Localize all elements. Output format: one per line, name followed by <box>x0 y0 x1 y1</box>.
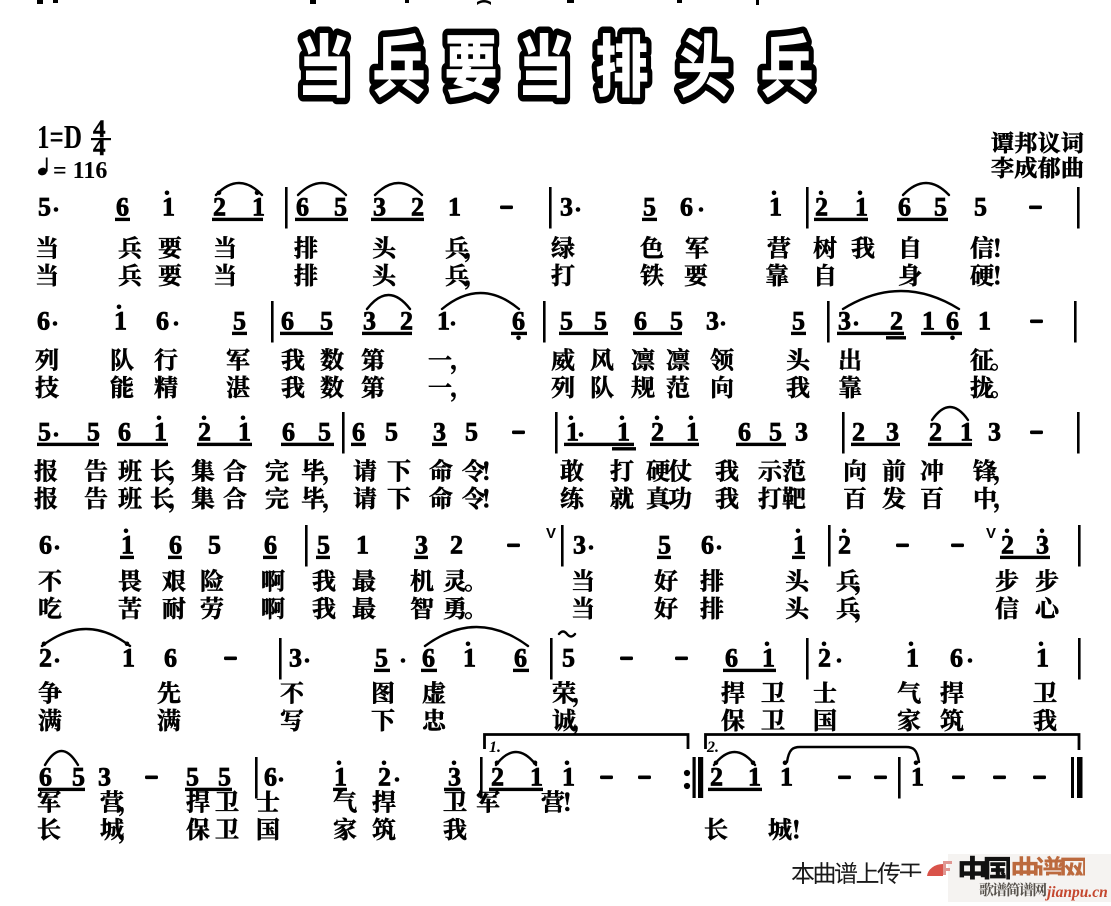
svg-text:1: 1 <box>162 193 175 222</box>
svg-text:2.: 2. <box>706 739 719 756</box>
svg-text:1: 1 <box>463 644 476 673</box>
svg-text:3: 3 <box>448 763 461 792</box>
svg-text:3: 3 <box>373 193 386 222</box>
svg-text:1: 1 <box>356 531 369 560</box>
svg-text:1: 1 <box>154 418 167 447</box>
svg-text:6: 6 <box>634 307 647 336</box>
svg-text:3: 3 <box>363 307 376 336</box>
svg-text:6: 6 <box>39 531 52 560</box>
svg-text:3: 3 <box>838 307 851 336</box>
svg-text:6: 6 <box>514 644 527 673</box>
svg-text:5: 5 <box>334 193 347 222</box>
svg-text:2: 2 <box>198 418 211 447</box>
svg-text:6: 6 <box>512 307 525 336</box>
svg-text:1: 1 <box>855 193 868 222</box>
svg-text:2: 2 <box>838 531 851 560</box>
svg-text:2: 2 <box>400 307 413 336</box>
svg-text:5: 5 <box>317 531 330 560</box>
svg-text:5: 5 <box>186 763 199 792</box>
svg-text:5: 5 <box>658 531 671 560</box>
svg-text:6: 6 <box>264 763 277 792</box>
svg-text:4: 4 <box>93 134 106 161</box>
svg-text:5: 5 <box>974 193 987 222</box>
svg-text:6: 6 <box>264 531 277 560</box>
svg-text:2: 2 <box>651 418 664 447</box>
svg-text:3: 3 <box>98 763 111 792</box>
svg-text:6: 6 <box>701 531 714 560</box>
svg-text:6: 6 <box>37 307 50 336</box>
svg-text:3: 3 <box>560 193 573 222</box>
svg-text:2: 2 <box>815 193 828 222</box>
svg-text:6: 6 <box>946 307 959 336</box>
svg-text:6: 6 <box>169 531 182 560</box>
svg-text:5: 5 <box>38 193 51 222</box>
svg-text:5: 5 <box>385 418 398 447</box>
svg-text:1: 1 <box>562 763 575 792</box>
svg-text:1: 1 <box>748 763 761 792</box>
svg-text:2: 2 <box>929 418 942 447</box>
svg-text:1: 1 <box>922 307 935 336</box>
svg-text:5: 5 <box>792 307 805 336</box>
svg-text:3: 3 <box>886 418 899 447</box>
svg-text:3: 3 <box>573 531 586 560</box>
svg-text:1: 1 <box>780 763 793 792</box>
svg-text:2: 2 <box>890 307 903 336</box>
svg-text:1: 1 <box>978 307 991 336</box>
svg-text:2: 2 <box>491 763 504 792</box>
svg-text:5: 5 <box>465 418 478 447</box>
svg-text:6: 6 <box>281 307 294 336</box>
svg-text:2: 2 <box>39 644 52 673</box>
svg-text:2: 2 <box>450 531 463 560</box>
svg-text:5: 5 <box>233 307 246 336</box>
svg-text:1: 1 <box>437 307 450 336</box>
svg-text:6: 6 <box>156 307 169 336</box>
svg-text:jianpu.cn: jianpu.cn <box>1044 884 1108 901</box>
svg-text:6: 6 <box>950 644 963 673</box>
svg-text:1: 1 <box>122 644 135 673</box>
svg-text:1: 1 <box>530 763 543 792</box>
svg-text:3: 3 <box>795 418 808 447</box>
svg-text:1: 1 <box>334 763 347 792</box>
svg-text:5: 5 <box>562 644 575 673</box>
svg-text:1: 1 <box>448 193 461 222</box>
svg-text:5: 5 <box>320 307 333 336</box>
svg-text:3: 3 <box>289 644 302 673</box>
svg-text:5: 5 <box>670 307 683 336</box>
svg-text:3: 3 <box>988 418 1001 447</box>
svg-text:5: 5 <box>72 763 85 792</box>
svg-text:1: 1 <box>960 418 973 447</box>
svg-text:6: 6 <box>680 193 693 222</box>
svg-text:6: 6 <box>422 644 435 673</box>
svg-text:6: 6 <box>725 644 738 673</box>
svg-text:6: 6 <box>738 418 751 447</box>
svg-text:2: 2 <box>818 644 831 673</box>
svg-text:1: 1 <box>906 644 919 673</box>
svg-text:1=D: 1=D <box>37 119 82 156</box>
svg-text:5: 5 <box>934 193 947 222</box>
svg-text:1: 1 <box>793 531 806 560</box>
svg-text:3: 3 <box>415 531 428 560</box>
svg-text:2: 2 <box>213 193 226 222</box>
svg-text:1: 1 <box>252 193 265 222</box>
svg-text:1: 1 <box>114 307 127 336</box>
svg-text:5: 5 <box>375 644 388 673</box>
svg-text:1: 1 <box>769 193 782 222</box>
svg-text:1: 1 <box>911 763 924 792</box>
svg-text:1: 1 <box>617 418 630 447</box>
svg-text:6: 6 <box>164 644 177 673</box>
svg-text:6: 6 <box>118 418 131 447</box>
svg-text:1: 1 <box>566 418 579 447</box>
svg-text:6: 6 <box>296 193 309 222</box>
svg-text:= 116: = 116 <box>53 158 107 184</box>
svg-text:2: 2 <box>852 418 865 447</box>
svg-text:3: 3 <box>706 307 719 336</box>
svg-text:V: V <box>986 525 996 542</box>
svg-text:2: 2 <box>411 193 424 222</box>
svg-text:5: 5 <box>87 418 100 447</box>
svg-text:6: 6 <box>116 193 129 222</box>
svg-text:6: 6 <box>898 193 911 222</box>
svg-text:1: 1 <box>121 531 134 560</box>
svg-text:1.: 1. <box>489 739 501 756</box>
svg-text:6: 6 <box>39 763 52 792</box>
svg-text:6: 6 <box>352 418 365 447</box>
svg-text:1: 1 <box>686 418 699 447</box>
svg-text:3: 3 <box>433 418 446 447</box>
svg-text:5: 5 <box>643 193 656 222</box>
svg-text:5: 5 <box>218 763 231 792</box>
svg-text:V: V <box>546 525 556 542</box>
svg-text:3: 3 <box>1036 531 1049 560</box>
svg-text:5: 5 <box>560 307 573 336</box>
svg-text:5: 5 <box>594 307 607 336</box>
svg-text:1: 1 <box>1036 644 1049 673</box>
svg-text:2: 2 <box>1001 531 1014 560</box>
svg-text:1: 1 <box>762 644 775 673</box>
svg-text:5: 5 <box>38 418 51 447</box>
svg-text:1: 1 <box>238 418 251 447</box>
svg-text:5: 5 <box>769 418 782 447</box>
svg-text:2: 2 <box>710 763 723 792</box>
svg-text:5: 5 <box>208 531 221 560</box>
svg-text:2: 2 <box>378 763 391 792</box>
svg-text:5: 5 <box>318 418 331 447</box>
svg-text:6: 6 <box>282 418 295 447</box>
